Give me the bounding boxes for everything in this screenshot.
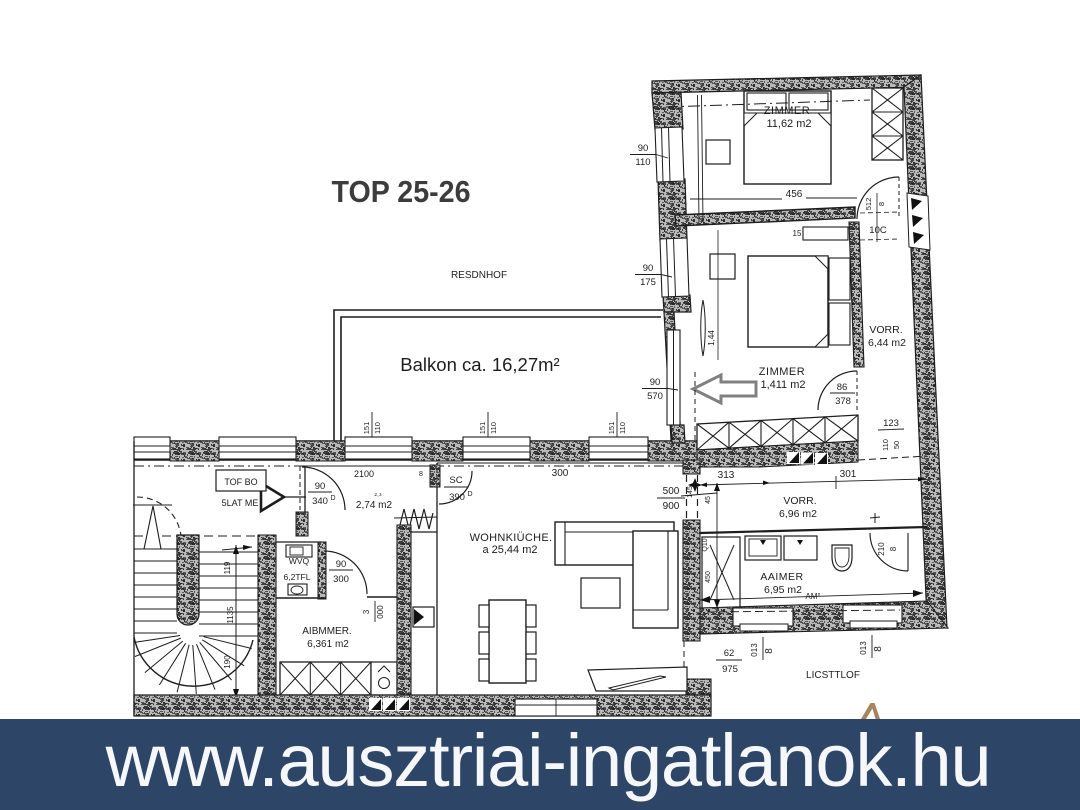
svg-text:90: 90 (650, 377, 661, 388)
svg-text:a 25,44 m2: a 25,44 m2 (482, 544, 537, 556)
svg-text:119: 119 (223, 561, 232, 574)
svg-text:8: 8 (877, 202, 886, 206)
svg-text:300: 300 (333, 574, 349, 585)
svg-text:110: 110 (618, 422, 627, 434)
svg-text:190: 190 (223, 655, 232, 669)
svg-text:RESDNHOF: RESDNHOF (451, 270, 507, 281)
svg-text:2,74 m2: 2,74 m2 (356, 500, 393, 511)
svg-text:151: 151 (607, 422, 616, 435)
svg-text:AAIMER: AAIMER (760, 571, 803, 583)
svg-text:1,411 m2: 1,411 m2 (760, 379, 805, 391)
svg-text:45: 45 (705, 496, 712, 504)
svg-text:ZIMMER: ZIMMER (759, 366, 805, 378)
svg-text:2100: 2100 (354, 469, 374, 479)
svg-text:570: 570 (647, 391, 663, 402)
svg-text:86: 86 (837, 382, 848, 393)
svg-text:VORR.: VORR. (869, 324, 902, 336)
svg-text:90: 90 (315, 481, 326, 492)
svg-text:8: 8 (419, 471, 423, 478)
svg-text:90: 90 (643, 263, 654, 274)
svg-text:10C: 10C (869, 225, 887, 236)
svg-text:1,44: 1,44 (707, 330, 716, 346)
svg-text:975: 975 (722, 664, 738, 675)
svg-text:SC: SC (449, 475, 462, 486)
svg-text:8: 8 (764, 648, 775, 654)
svg-text:6,95 m2: 6,95 m2 (764, 584, 802, 596)
svg-text:175: 175 (640, 277, 656, 288)
svg-text:15: 15 (793, 229, 802, 238)
svg-text:90: 90 (336, 559, 347, 570)
svg-text:151: 151 (478, 422, 487, 435)
svg-text:110: 110 (489, 422, 498, 434)
svg-text:WOHNKIÜCHE.: WOHNKIÜCHE. (470, 532, 553, 544)
svg-text:WVQ: WVQ (289, 556, 310, 566)
svg-text:Balkon ca. 16,27m²: Balkon ca. 16,27m² (400, 354, 559, 375)
svg-text:6,96 m2: 6,96 m2 (779, 508, 817, 520)
svg-text:450: 450 (705, 571, 712, 583)
svg-text:1135: 1135 (226, 606, 235, 624)
svg-text:301: 301 (840, 469, 857, 480)
svg-text:TOP 25-26: TOP 25-26 (332, 174, 471, 209)
svg-text:145: 145 (687, 486, 694, 498)
svg-text:6,44 m2: 6,44 m2 (868, 337, 906, 349)
svg-text:013: 013 (859, 641, 868, 655)
svg-text:110: 110 (881, 439, 890, 451)
svg-text:340: 340 (312, 496, 328, 507)
svg-text:378: 378 (835, 396, 851, 407)
svg-text:D: D (330, 495, 335, 502)
svg-text:210: 210 (877, 542, 886, 556)
svg-text:11,62 m2: 11,62 m2 (766, 118, 811, 130)
svg-text:900: 900 (663, 501, 680, 512)
svg-text:6,361 m2: 6,361 m2 (307, 639, 349, 650)
svg-text:Q10: Q10 (702, 538, 709, 551)
svg-text:000: 000 (376, 605, 385, 619)
svg-text:313: 313 (718, 470, 735, 481)
svg-text:390: 390 (449, 492, 465, 503)
svg-text:D: D (467, 491, 472, 498)
svg-text:110: 110 (373, 422, 382, 434)
svg-text:TOF BO: TOF BO (224, 477, 257, 487)
svg-text:VORR.: VORR. (783, 495, 816, 507)
svg-text:151: 151 (362, 422, 371, 435)
svg-text:123: 123 (883, 418, 899, 429)
svg-text:500: 500 (663, 486, 680, 497)
svg-text:ZIMMER: ZIMMER (764, 105, 810, 117)
svg-text:8: 8 (873, 646, 884, 652)
svg-text:3: 3 (362, 609, 371, 614)
svg-text:50: 50 (892, 441, 901, 449)
svg-text:²·³: ²·³ (375, 493, 383, 500)
svg-text:90: 90 (638, 143, 649, 154)
svg-text:5LAT ME: 5LAT ME (222, 498, 259, 508)
svg-text:LICSTTLOF: LICSTTLOF (806, 670, 860, 681)
svg-text:6,2TFL: 6,2TFL (284, 572, 311, 582)
svg-text:300: 300 (552, 468, 569, 479)
svg-text:110: 110 (635, 157, 650, 168)
svg-text:62: 62 (724, 648, 735, 659)
svg-text:456: 456 (786, 189, 803, 200)
svg-text:013: 013 (750, 643, 759, 657)
svg-text:AIBMMER.: AIBMMER. (302, 626, 351, 637)
svg-text:512: 512 (864, 198, 873, 211)
svg-text:8: 8 (889, 546, 898, 551)
